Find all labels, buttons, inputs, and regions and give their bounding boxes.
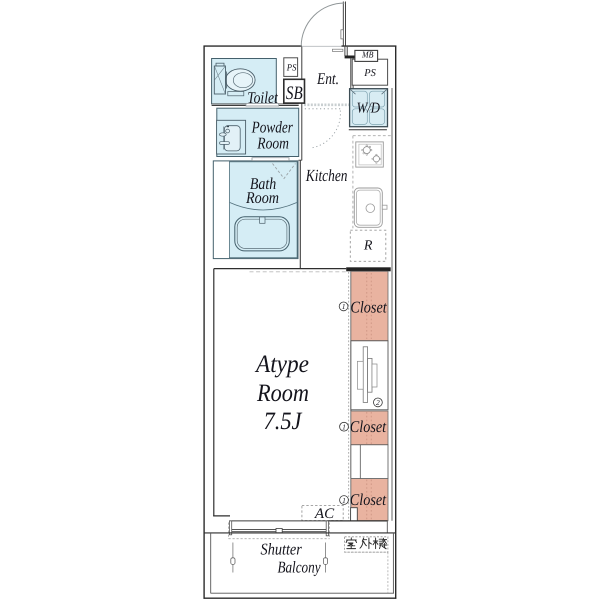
svg-text:PS: PS xyxy=(286,64,297,74)
svg-text:7.5J: 7.5J xyxy=(264,408,304,435)
svg-text:AC: AC xyxy=(314,506,335,522)
svg-text:R: R xyxy=(363,239,373,254)
svg-text:Kitchen: Kitchen xyxy=(305,166,347,185)
svg-text:PS: PS xyxy=(363,68,376,79)
svg-text:Room: Room xyxy=(256,134,289,153)
svg-text:1: 1 xyxy=(342,423,346,432)
svg-text:Closet: Closet xyxy=(350,490,387,509)
svg-text:Balcony: Balcony xyxy=(277,557,321,576)
svg-text:Closet: Closet xyxy=(350,417,387,436)
svg-text:Atype: Atype xyxy=(254,351,309,378)
svg-text:W/D: W/D xyxy=(357,101,381,117)
svg-text:Shutter: Shutter xyxy=(261,539,303,558)
svg-text:MB: MB xyxy=(361,50,374,60)
svg-text:1: 1 xyxy=(342,302,346,311)
svg-text:1: 1 xyxy=(342,496,346,505)
svg-text:Ent.: Ent. xyxy=(316,69,339,88)
svg-text:2: 2 xyxy=(376,398,380,407)
svg-text:Room: Room xyxy=(245,188,279,207)
svg-text:Closet: Closet xyxy=(350,297,387,316)
svg-text:Room: Room xyxy=(256,380,309,407)
svg-text:SB: SB xyxy=(286,83,303,104)
